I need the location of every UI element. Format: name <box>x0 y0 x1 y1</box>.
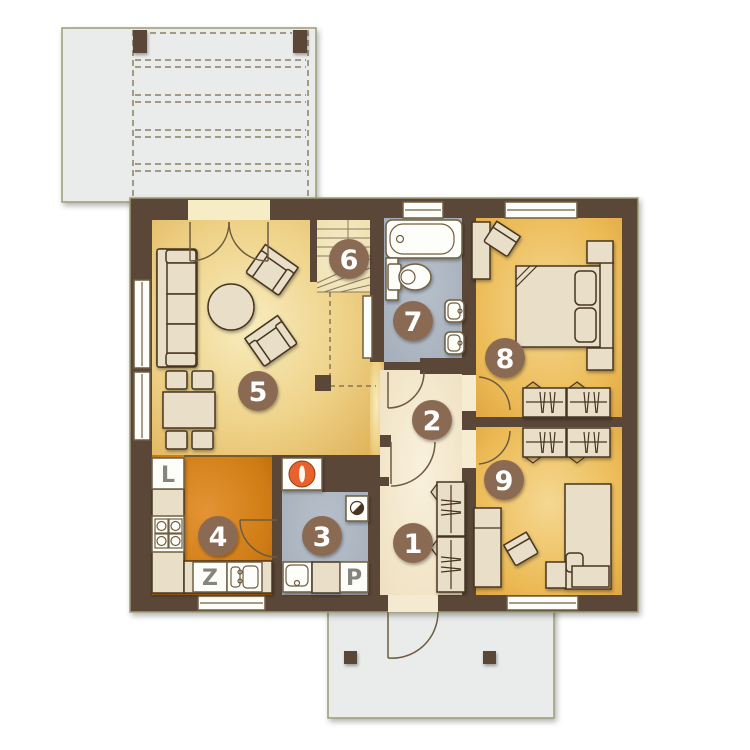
coffee-table <box>208 284 254 330</box>
terrace-post <box>293 30 307 53</box>
sofa <box>157 249 197 367</box>
floor-plan: 1 2 3 4 5 6 7 8 9 L Z P <box>0 0 750 750</box>
room-badge-8: 8 <box>485 338 525 378</box>
entry-porch <box>328 608 554 718</box>
window <box>134 280 150 368</box>
floor-plan-drawing: 1 2 3 4 5 6 7 8 9 L Z P <box>0 0 750 750</box>
badge-number: 8 <box>496 344 515 375</box>
dining-chair <box>166 431 187 449</box>
room-badge-6: 6 <box>329 239 369 279</box>
room-badge-5: 5 <box>238 371 278 411</box>
bathtub <box>386 220 462 258</box>
door-threshold <box>462 430 476 468</box>
badge-number: 3 <box>313 522 332 553</box>
blanket <box>572 566 609 587</box>
toilet <box>388 264 431 290</box>
kitchen-sink <box>227 562 262 592</box>
porch-post <box>344 651 357 664</box>
stair-post <box>315 375 331 391</box>
dishwasher-label: Z <box>202 566 218 591</box>
window <box>198 596 265 610</box>
window <box>505 202 577 218</box>
badge-number: 5 <box>249 377 268 408</box>
terrace <box>62 28 316 202</box>
window <box>507 596 578 610</box>
badge-number: 6 <box>340 245 359 276</box>
single-bed <box>565 484 611 589</box>
utility-counter <box>312 562 340 593</box>
badge-number: 1 <box>404 529 423 560</box>
door-threshold <box>462 375 476 411</box>
wardrobe <box>523 382 566 417</box>
window <box>403 202 443 218</box>
badge-number: 2 <box>423 406 442 437</box>
dining-chair <box>192 371 213 389</box>
laundry-sink <box>283 562 312 592</box>
water-meter <box>346 496 368 521</box>
pillow <box>575 271 596 305</box>
fridge-label: L <box>161 463 175 488</box>
window <box>134 372 150 440</box>
pillow <box>575 308 596 342</box>
room-badge-3: 3 <box>302 516 342 556</box>
terrace-door-threshold <box>188 200 270 220</box>
room-badge-7: 7 <box>393 301 433 341</box>
desk <box>472 222 490 279</box>
washbasin <box>445 300 464 322</box>
nightstand <box>587 241 613 263</box>
desk <box>474 508 501 587</box>
nightstand <box>587 348 613 370</box>
boiler-lid <box>299 466 305 483</box>
room-badge-1: 1 <box>393 523 433 563</box>
terrace-post <box>133 30 147 53</box>
porch-post <box>483 651 496 664</box>
dining-chair <box>192 431 213 449</box>
stove <box>152 516 184 552</box>
nightstand <box>546 562 566 588</box>
understair-door-leaf <box>363 296 372 358</box>
badge-number: 9 <box>495 466 514 497</box>
wardrobe <box>567 382 610 417</box>
dining-chair <box>166 371 187 389</box>
wardrobe <box>523 428 566 463</box>
headboard <box>600 261 613 352</box>
badge-number: 7 <box>404 307 423 338</box>
dining-table <box>163 392 215 428</box>
room-badge-4: 4 <box>198 516 238 556</box>
wardrobe <box>567 428 610 463</box>
room-badge-9: 9 <box>484 460 524 500</box>
room-badge-2: 2 <box>412 400 452 440</box>
washbasin <box>445 332 464 354</box>
double-bed <box>516 261 613 352</box>
washer-label: P <box>346 566 362 591</box>
front-door-threshold <box>388 595 438 612</box>
badge-number: 4 <box>209 522 228 553</box>
